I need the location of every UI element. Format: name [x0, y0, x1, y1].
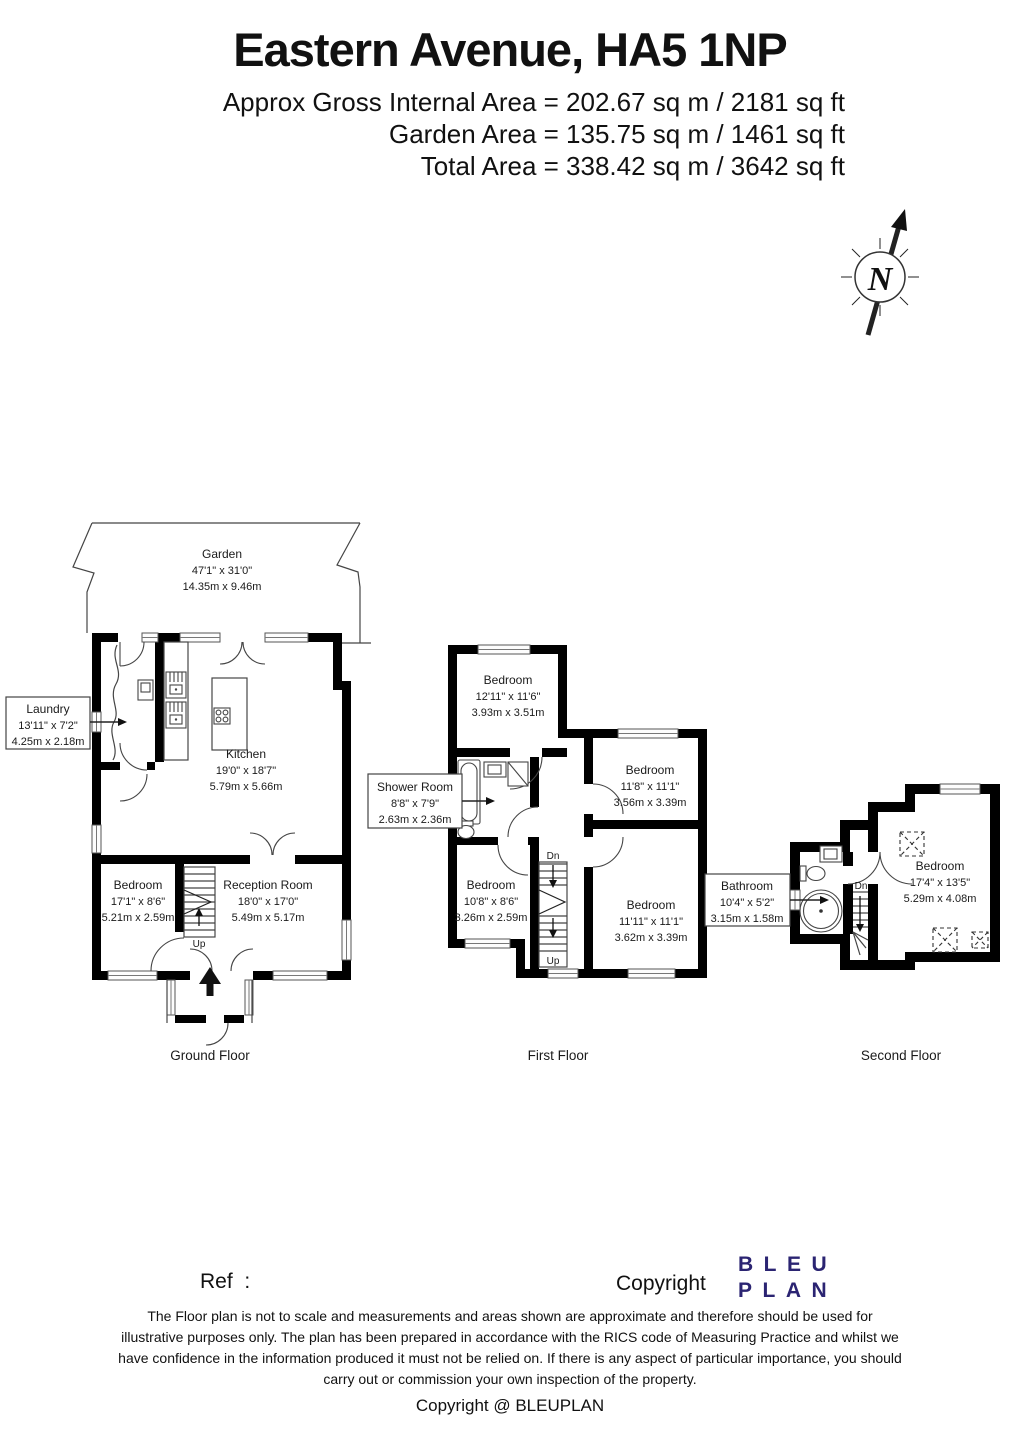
svg-text:10'8" x 8'6": 10'8" x 8'6" — [464, 896, 518, 908]
second-stairs: Dn — [853, 881, 868, 955]
first-floor-plan: Dn Up Bedroom 12'11" x 11'6" 3.93m x 3.5… — [360, 512, 720, 1072]
ref-label: Ref : — [200, 1270, 250, 1294]
svg-text:13'11" x 7'2": 13'11" x 7'2" — [18, 720, 78, 732]
copyright-label: Copyright — [616, 1272, 706, 1296]
svg-text:3.93m x 3.51m: 3.93m x 3.51m — [472, 707, 545, 719]
north-label: N — [867, 261, 894, 298]
svg-text:Laundry: Laundry — [26, 702, 69, 716]
stairs-dn-label: Dn — [855, 881, 868, 892]
skylights — [900, 832, 988, 952]
second-doors — [848, 852, 912, 884]
svg-text:3.56m x 3.39m: 3.56m x 3.39m — [614, 797, 687, 809]
first-bedroom-left-bottom-label: Bedroom 10'8" x 8'6" 3.26m x 2.59m — [455, 878, 528, 924]
disclaimer: The Floor plan is not to scale and measu… — [0, 1306, 1020, 1416]
svg-text:14.35m x 9.46m: 14.35m x 9.46m — [183, 581, 262, 593]
ground-stairs: Up — [184, 867, 215, 950]
svg-text:3.15m x 1.58m: 3.15m x 1.58m — [711, 913, 784, 925]
first-stairs: Dn Up — [539, 851, 567, 967]
garden-label: Garden 47'1" x 31'0" 14.35m x 9.46m — [183, 547, 262, 593]
shower-icon — [508, 762, 528, 786]
svg-text:11'11" x 11'1": 11'11" x 11'1" — [619, 916, 683, 928]
kitchen-island — [212, 678, 247, 750]
area-line-garden: Garden Area = 135.75 sq m / 1461 sq ft — [223, 118, 845, 150]
svg-text:Bathroom: Bathroom — [721, 879, 773, 893]
second-floor-plan: Dn Bedroom 17'4" x 13'5" 5.29m x 4.08m B… — [700, 512, 1020, 1072]
logo-line-2: PLAN — [738, 1278, 837, 1304]
first-bedroom-right-top-label: Bedroom 11'8" x 11'1" 3.56m x 3.39m — [614, 763, 687, 809]
kitchen-counter — [164, 642, 188, 760]
second-floor-caption: Second Floor — [861, 1048, 942, 1063]
svg-text:18'0" x 17'0": 18'0" x 17'0" — [238, 896, 298, 908]
north-arrow: N — [835, 205, 945, 355]
logo-line-1: BLEU — [738, 1252, 837, 1278]
appliance-icon — [166, 702, 186, 728]
svg-text:Bedroom: Bedroom — [484, 673, 533, 687]
svg-text:2.63m x 2.36m: 2.63m x 2.36m — [379, 814, 452, 826]
svg-text:12'11" x 11'6": 12'11" x 11'6" — [476, 691, 541, 703]
stairs-up-label: Up — [547, 956, 560, 967]
north-arrowhead — [891, 209, 907, 231]
svg-text:3.62m x 3.39m: 3.62m x 3.39m — [615, 932, 688, 944]
appliance-icon — [166, 672, 186, 698]
area-line-gross: Approx Gross Internal Area = 202.67 sq m… — [223, 86, 845, 118]
svg-text:11'8" x 11'1": 11'8" x 11'1" — [621, 781, 680, 793]
svg-text:17'4" x 13'5": 17'4" x 13'5" — [910, 877, 970, 889]
first-floor-caption: First Floor — [528, 1048, 589, 1063]
hob-icon — [214, 708, 230, 724]
round-bathtub-icon — [800, 890, 842, 932]
bleuplan-logo: BLEU PLAN — [738, 1252, 837, 1304]
svg-text:4.25m x 2.18m: 4.25m x 2.18m — [12, 736, 85, 748]
shower-room-fixtures — [458, 760, 528, 839]
svg-text:Bedroom: Bedroom — [114, 878, 163, 892]
area-line-total: Total Area = 338.42 sq m / 3642 sq ft — [223, 150, 845, 182]
disclaimer-line: have confidence in the information produ… — [0, 1348, 1020, 1369]
entrance-arrow-icon — [199, 967, 221, 996]
svg-text:Kitchen: Kitchen — [226, 747, 266, 761]
footer-copyright-line: Copyright @ BLEUPLAN — [0, 1395, 1020, 1416]
svg-text:Shower Room: Shower Room — [377, 780, 453, 794]
skylight-icon — [933, 928, 957, 952]
skylight-icon — [900, 832, 924, 856]
ground-floor-caption: Ground Floor — [170, 1048, 250, 1063]
svg-text:10'4" x 5'2": 10'4" x 5'2" — [720, 897, 774, 909]
kitchen-label: Kitchen 19'0" x 18'7" 5.79m x 5.66m — [210, 747, 283, 793]
disclaimer-line: illustrative purposes only. The plan has… — [0, 1327, 1020, 1348]
svg-text:47'1" x 31'0": 47'1" x 31'0" — [192, 565, 252, 577]
toilet-icon — [800, 866, 825, 881]
bathroom-fixtures — [800, 846, 842, 932]
stairs-dn-label: Dn — [547, 851, 560, 862]
svg-text:19'0" x 18'7": 19'0" x 18'7" — [216, 765, 276, 777]
second-bedroom-label: Bedroom 17'4" x 13'5" 5.29m x 4.08m — [904, 859, 977, 905]
svg-text:Bedroom: Bedroom — [626, 763, 675, 777]
ground-bedroom-label: Bedroom 17'1" x 8'6" 5.21m x 2.59m — [102, 878, 175, 924]
sink-icon — [484, 762, 506, 777]
svg-text:Bedroom: Bedroom — [467, 878, 516, 892]
svg-text:5.49m x 5.17m: 5.49m x 5.17m — [232, 912, 305, 924]
svg-text:5.29m x 4.08m: 5.29m x 4.08m — [904, 893, 977, 905]
reception-label: Reception Room 18'0" x 17'0" 5.49m x 5.1… — [223, 878, 312, 924]
svg-text:Bedroom: Bedroom — [627, 898, 676, 912]
svg-text:5.79m x 5.66m: 5.79m x 5.66m — [210, 781, 283, 793]
disclaimer-line: The Floor plan is not to scale and measu… — [0, 1306, 1020, 1327]
svg-text:Reception Room: Reception Room — [223, 878, 312, 892]
stairs-up-label: Up — [193, 939, 206, 950]
floorplan-page: Eastern Avenue, HA5 1NP Approx Gross Int… — [0, 0, 1020, 1442]
svg-text:17'1" x 8'6": 17'1" x 8'6" — [111, 896, 165, 908]
ground-floor-plan: Up Garden 47'1" x 31'0" 14.35m x 9.46m K… — [0, 512, 390, 1072]
first-bedroom-right-bottom-label: Bedroom 11'11" x 11'1" 3.62m x 3.39m — [615, 898, 688, 944]
skylight-icon — [972, 932, 988, 948]
laundry-label-box: Laundry 13'11" x 7'2" 4.25m x 2.18m — [6, 697, 127, 749]
area-summary: Approx Gross Internal Area = 202.67 sq m… — [223, 86, 845, 182]
first-bedroom-front-label: Bedroom 12'11" x 11'6" 3.93m x 3.51m — [472, 673, 545, 719]
page-title: Eastern Avenue, HA5 1NP — [0, 22, 1020, 77]
sink-icon — [820, 846, 842, 862]
disclaimer-line: carry out or commission your own inspect… — [0, 1369, 1020, 1390]
svg-text:Garden: Garden — [202, 547, 242, 561]
svg-text:3.26m x 2.59m: 3.26m x 2.59m — [455, 912, 528, 924]
svg-text:5.21m x 2.59m: 5.21m x 2.59m — [102, 912, 175, 924]
svg-text:8'8" x 7'9": 8'8" x 7'9" — [391, 798, 439, 810]
svg-text:Bedroom: Bedroom — [916, 859, 965, 873]
